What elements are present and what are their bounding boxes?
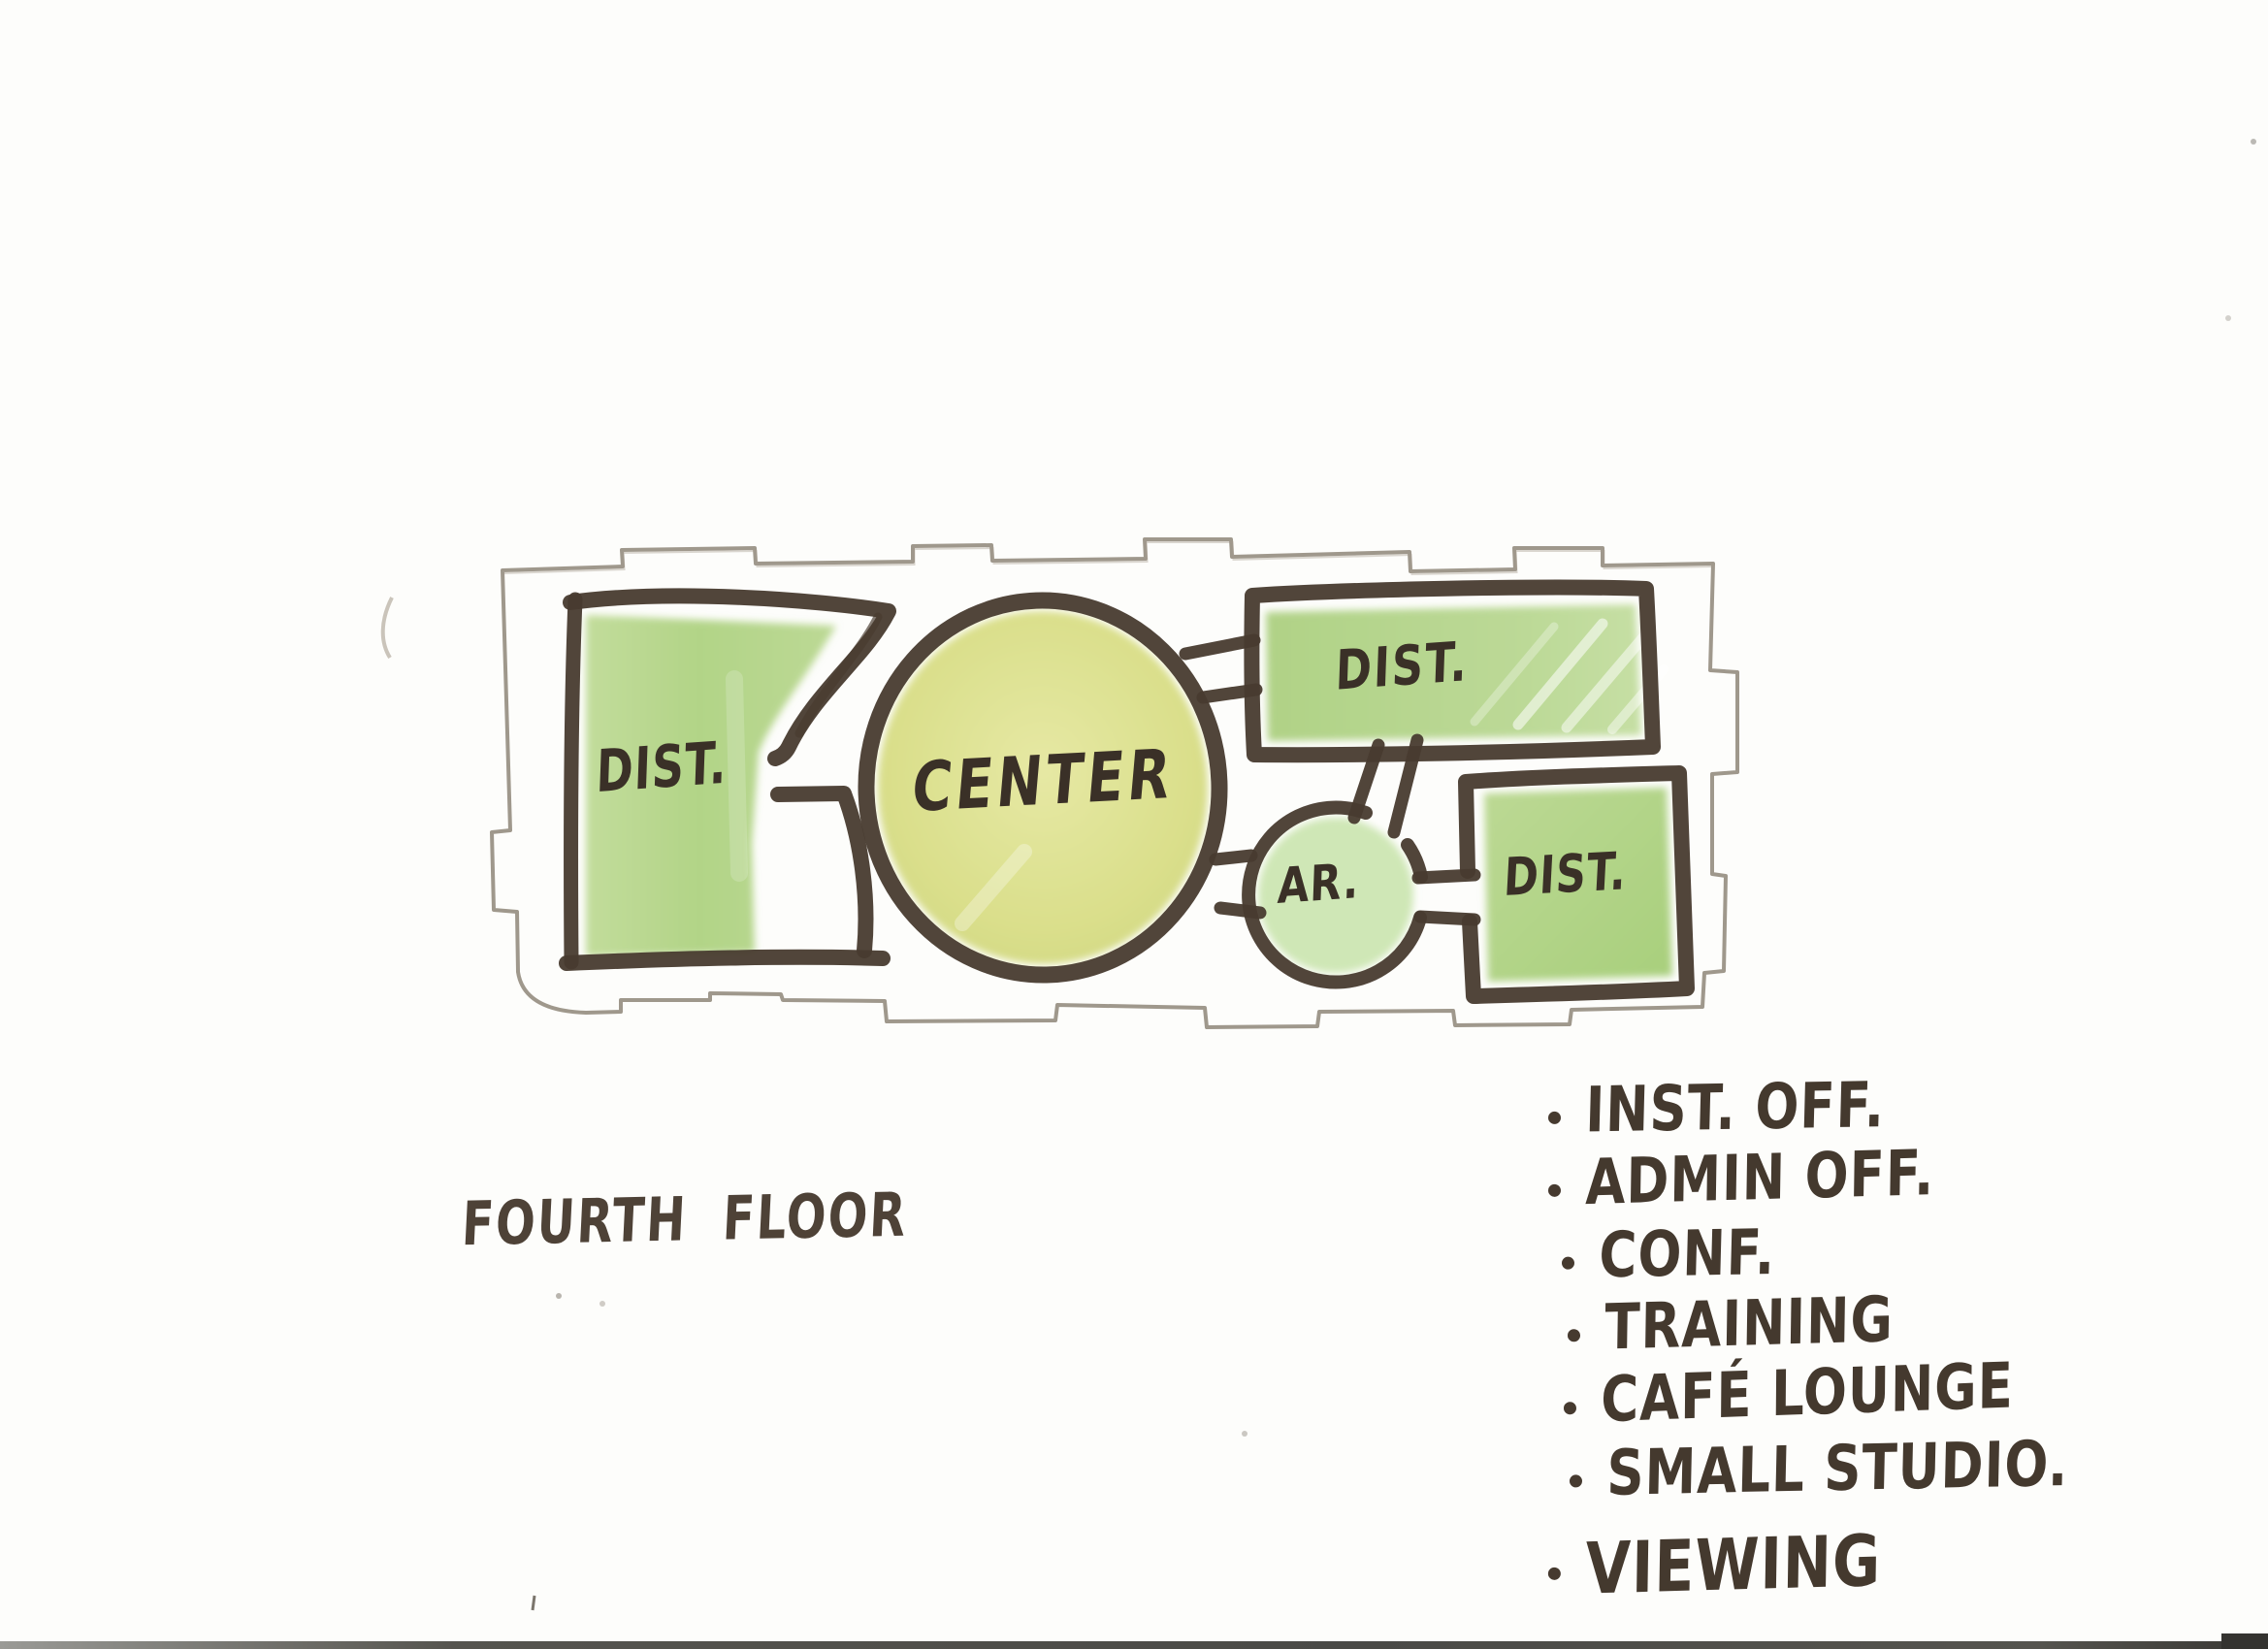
program-list-label: VIEWING — [1585, 1520, 1882, 1611]
program-list-label: SMALL STUDIO. — [1606, 1428, 2070, 1509]
bullet-dot-icon — [1548, 1184, 1561, 1197]
bullet-dot-icon — [1548, 1112, 1561, 1124]
program-list-item: INST. OFF. — [1547, 1080, 2067, 1148]
corridor-ar-to-dist-bottom-right — [1418, 875, 1474, 920]
program-list-item: CAFÉ LOUNGE — [1547, 1361, 2068, 1439]
bullet-dot-icon — [1564, 1402, 1576, 1414]
room-label-dist-bottom-right: DIST. — [1503, 841, 1629, 908]
floor-title: FOURTH FLOOR — [460, 1180, 909, 1260]
program-list-label: TRAINING — [1604, 1284, 1895, 1365]
program-list-item: SMALL STUDIO. — [1547, 1441, 2067, 1511]
program-list-item: CONF. — [1547, 1225, 2067, 1293]
program-list-label: CONF. — [1599, 1216, 1777, 1292]
bullet-dot-icon — [1562, 1257, 1574, 1270]
program-list-item: VIEWING — [1547, 1530, 2068, 1612]
bullet-dot-icon — [1568, 1329, 1580, 1342]
scan-edge-corner — [2221, 1633, 2268, 1649]
program-list-label: ADMIN OFF. — [1585, 1137, 1935, 1219]
program-list-label: INST. OFF. — [1585, 1069, 1887, 1147]
room-label-dist-top-right: DIST. — [1335, 629, 1470, 702]
room-label-center: CENTER — [909, 735, 1178, 828]
scanned-floor-plan-sketch: DIST. CENTER DIST. AR. DIST. FOURTH FLOO… — [0, 0, 2268, 1649]
room-label-ar: AR. — [1277, 852, 1360, 915]
bullet-dot-icon — [1548, 1568, 1561, 1580]
bullet-dot-icon — [1570, 1474, 1582, 1487]
room-label-dist-left: DIST. — [596, 728, 729, 806]
program-list: INST. OFF. ADMIN OFF. CONF. TRAINING CAF… — [1548, 1088, 2067, 1626]
program-list-label: CAFÉ LOUNGE — [1601, 1350, 2014, 1437]
scan-edge-strip — [0, 1641, 2268, 1649]
program-list-item: ADMIN OFF. — [1547, 1147, 2068, 1220]
